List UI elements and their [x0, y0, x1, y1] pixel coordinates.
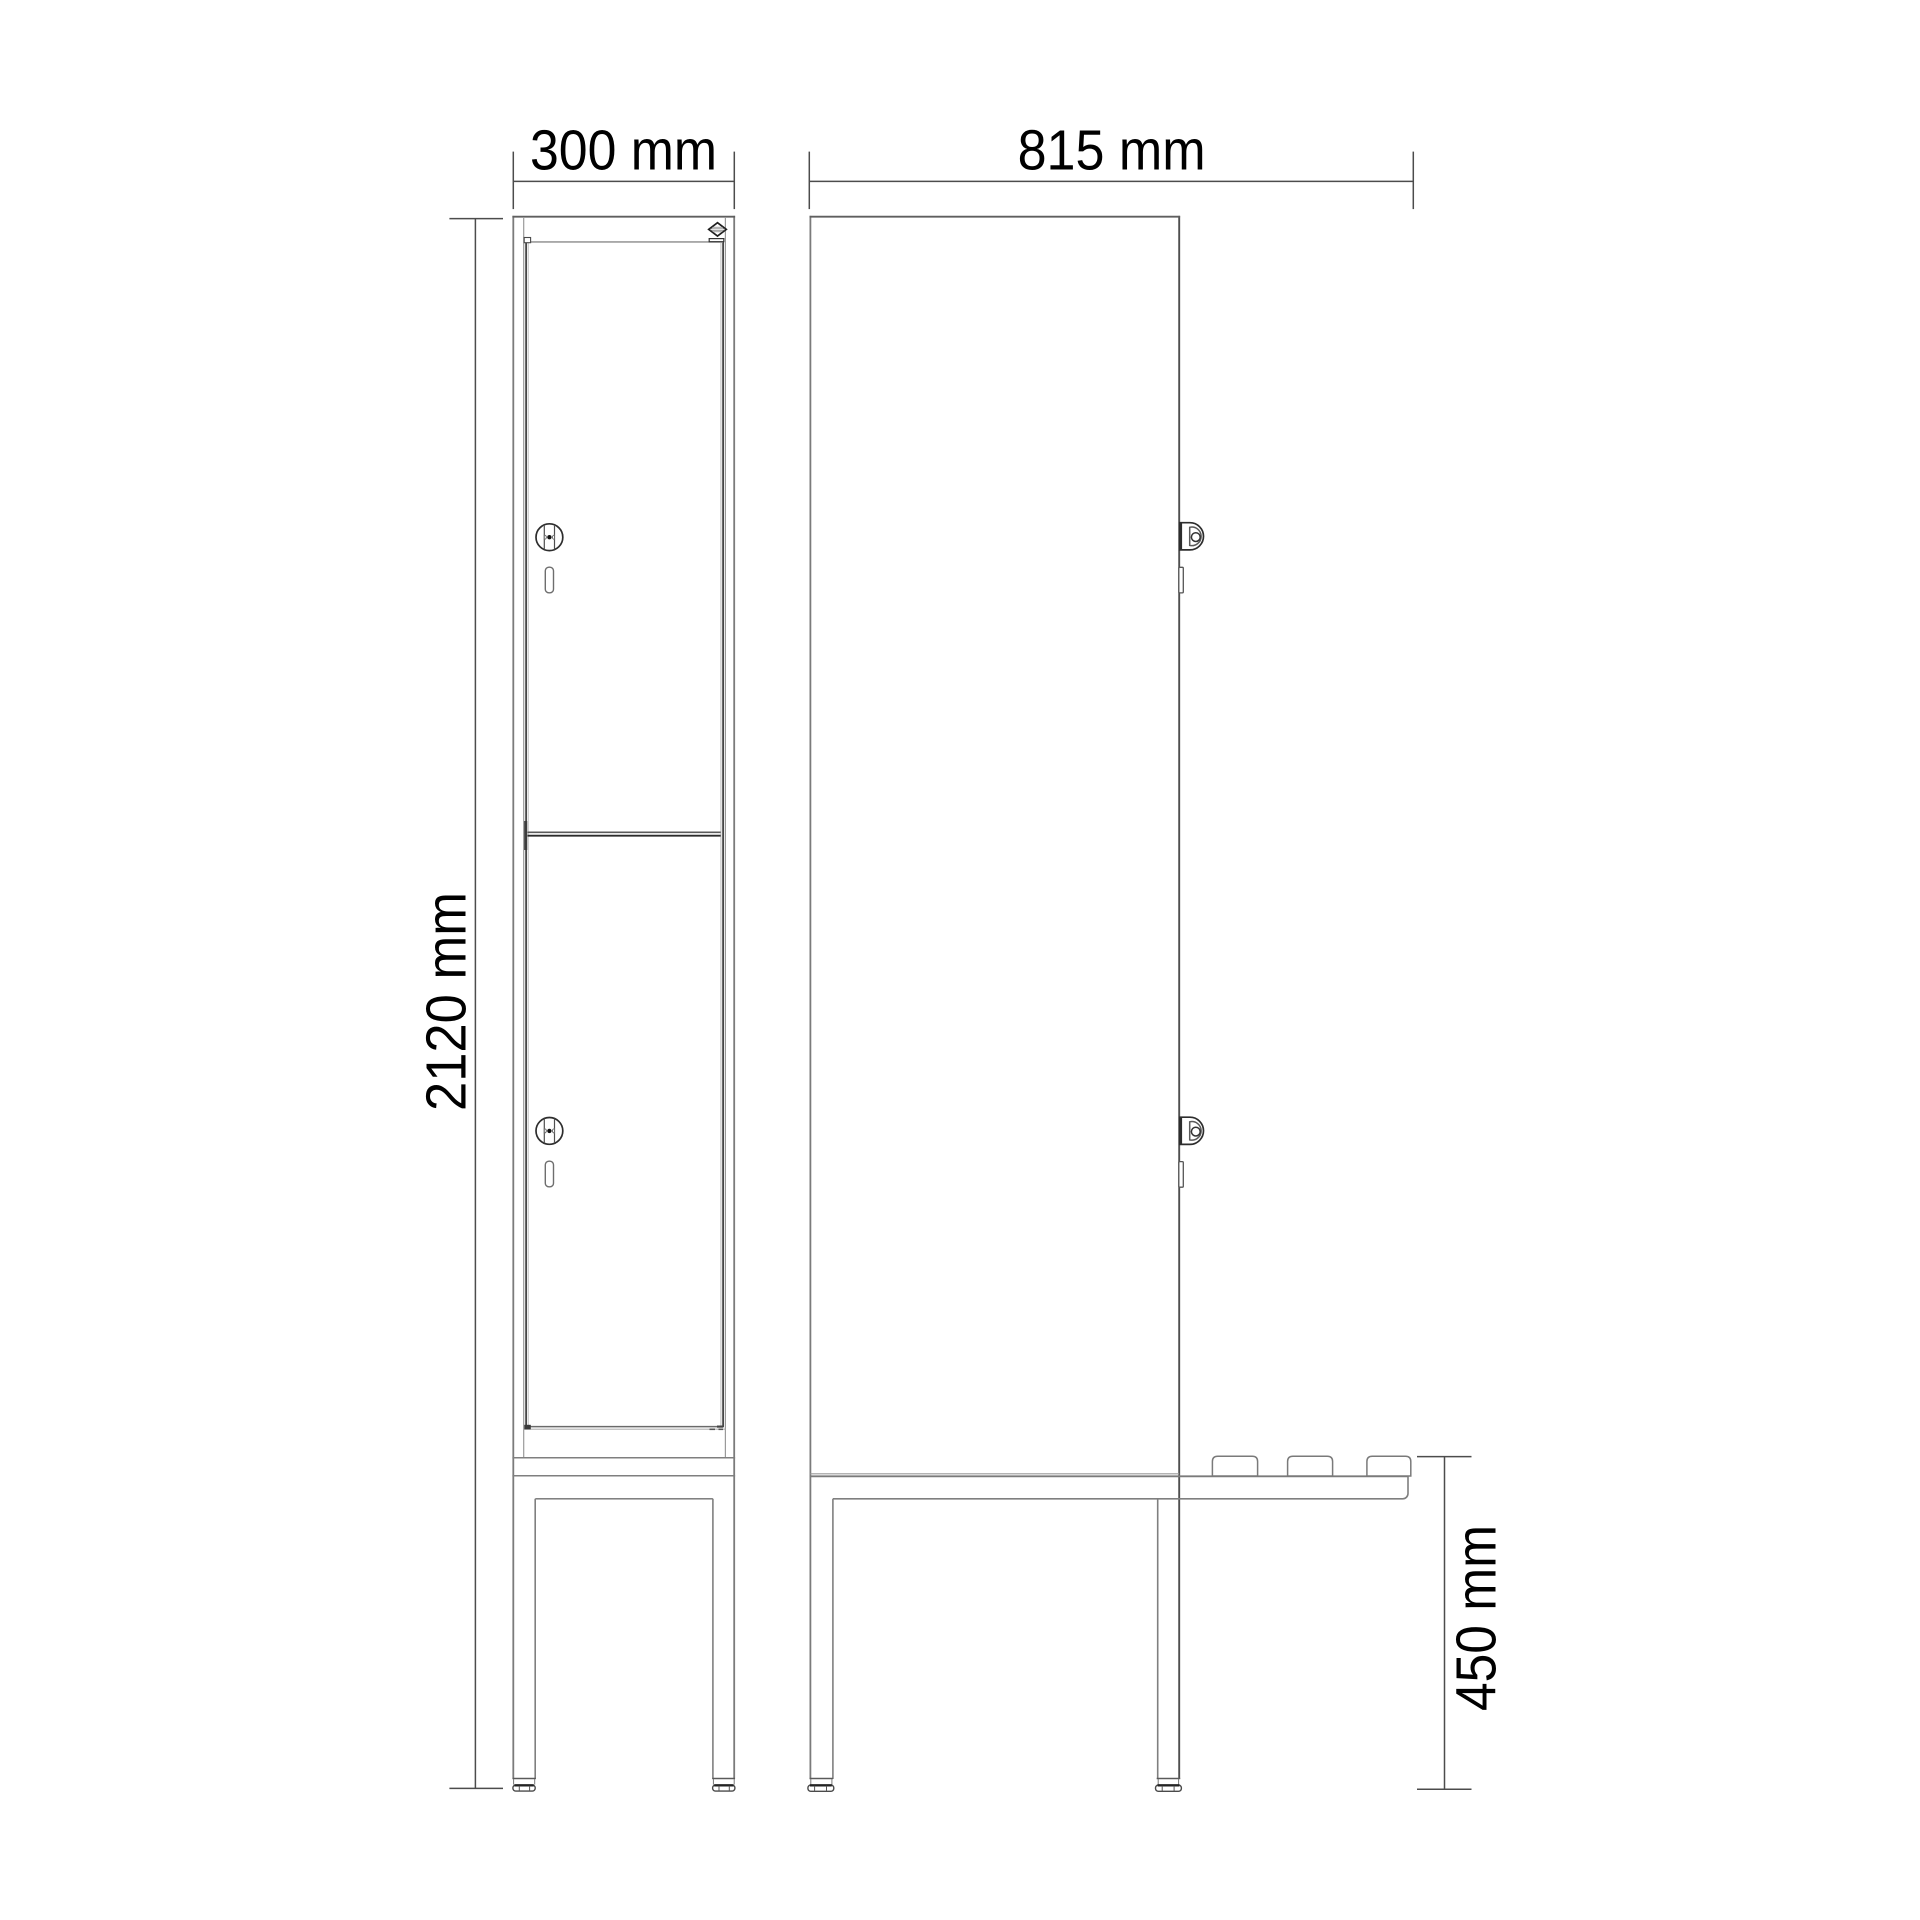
svg-text:815 mm: 815 mm — [1018, 118, 1206, 182]
svg-text:300 mm: 300 mm — [530, 118, 717, 182]
svg-text:450 mm: 450 mm — [1445, 1525, 1509, 1711]
svg-text:2120 mm: 2120 mm — [415, 892, 479, 1111]
